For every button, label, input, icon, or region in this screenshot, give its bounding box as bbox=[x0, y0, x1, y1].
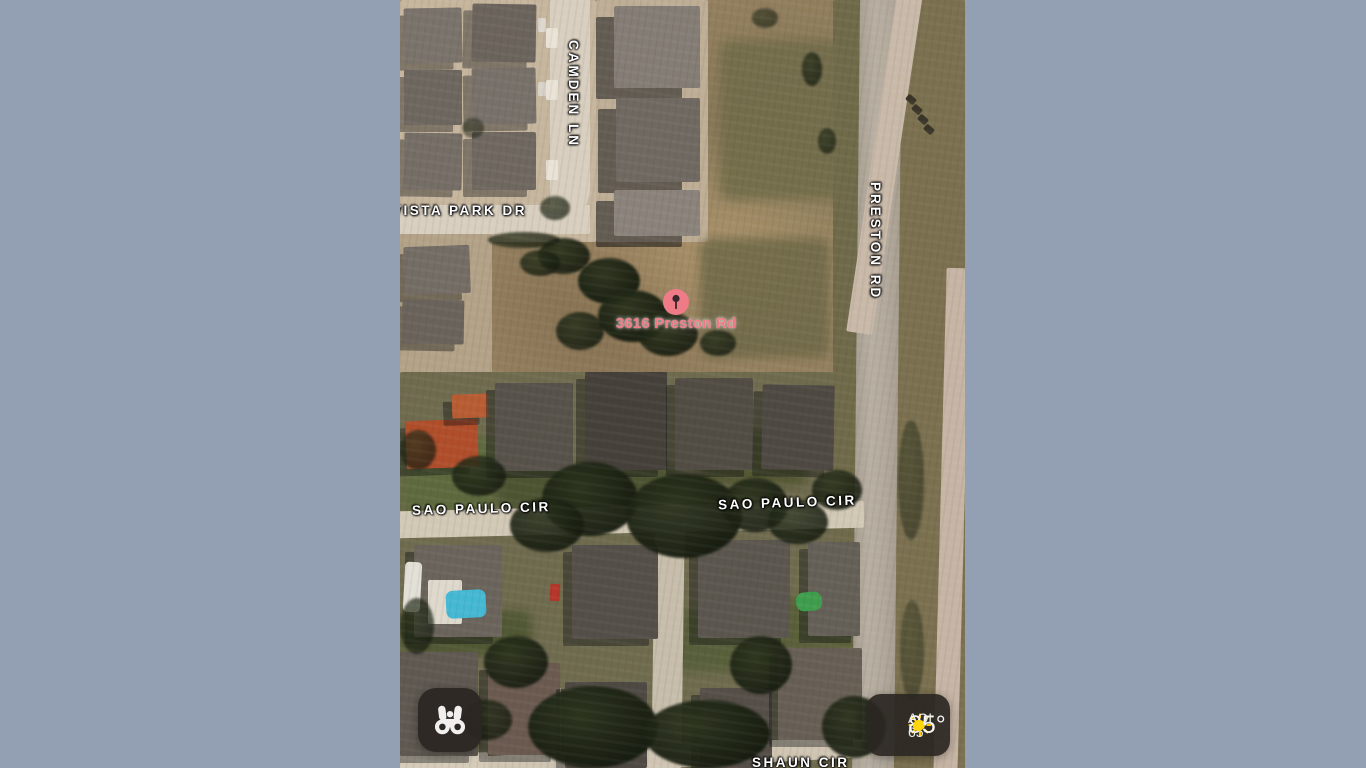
map-tree bbox=[818, 128, 836, 154]
map-tree bbox=[802, 52, 822, 86]
aqi-status-dot bbox=[913, 720, 924, 731]
map-pin-icon[interactable] bbox=[662, 288, 690, 316]
street-label-shaun-cir: SHAUN CIR bbox=[752, 755, 850, 768]
map-tree bbox=[520, 250, 560, 276]
map-building bbox=[614, 6, 700, 88]
map-tree bbox=[898, 420, 924, 540]
street-label-camden-ln: CAMDEN LN bbox=[566, 40, 581, 148]
map-building bbox=[471, 3, 536, 62]
white-car bbox=[538, 18, 546, 32]
pin-address-label[interactable]: 3616 Preston Rd bbox=[616, 315, 737, 332]
swimming-pool-green bbox=[795, 591, 823, 612]
map-tree bbox=[452, 456, 506, 496]
map-tree bbox=[488, 232, 560, 248]
binoculars-icon bbox=[432, 704, 468, 736]
driveway-apron bbox=[546, 80, 558, 100]
map-tree bbox=[752, 8, 778, 28]
map-building bbox=[675, 378, 753, 470]
map-building bbox=[404, 132, 463, 190]
map-building bbox=[698, 540, 790, 638]
map-tree bbox=[462, 118, 484, 138]
map-building bbox=[572, 545, 658, 639]
red-car bbox=[550, 584, 561, 601]
driveway-apron bbox=[546, 160, 558, 180]
screen: CAMDEN LN VISTA PARK DR PRESTON RD SAO P… bbox=[0, 0, 1366, 768]
map-building bbox=[495, 383, 573, 471]
white-car bbox=[538, 82, 546, 96]
pin-glyph bbox=[662, 288, 690, 316]
swimming-pool bbox=[445, 589, 486, 619]
weather-widget[interactable]: 85° AQI 65 bbox=[866, 694, 950, 756]
street-label-preston-rd: PRESTON RD bbox=[868, 182, 883, 300]
map-building bbox=[472, 132, 536, 190]
map-building bbox=[761, 384, 834, 470]
map-building bbox=[472, 67, 537, 124]
street-label-vista-park-dr: VISTA PARK DR bbox=[400, 203, 527, 218]
map-tree bbox=[900, 600, 924, 700]
map-tree bbox=[400, 598, 434, 654]
map-satellite-view[interactable]: CAMDEN LN VISTA PARK DR PRESTON RD SAO P… bbox=[400, 0, 965, 768]
map-tree bbox=[528, 686, 658, 768]
map-building bbox=[452, 393, 489, 418]
map-tree bbox=[700, 330, 736, 356]
look-around-button[interactable] bbox=[418, 688, 482, 752]
map-building bbox=[402, 299, 465, 344]
driveway-apron bbox=[546, 28, 558, 48]
map-building bbox=[404, 7, 463, 63]
map-tree bbox=[400, 430, 436, 470]
map-building bbox=[614, 190, 700, 236]
map-tree bbox=[484, 636, 548, 688]
map-building bbox=[808, 542, 860, 636]
map-building bbox=[585, 372, 667, 470]
map-tree bbox=[540, 196, 570, 220]
map-building bbox=[616, 98, 700, 182]
map-building bbox=[404, 70, 462, 125]
map-tree bbox=[730, 636, 792, 694]
map-building bbox=[403, 245, 471, 295]
map-tree bbox=[556, 312, 604, 350]
map-grass bbox=[720, 40, 840, 200]
